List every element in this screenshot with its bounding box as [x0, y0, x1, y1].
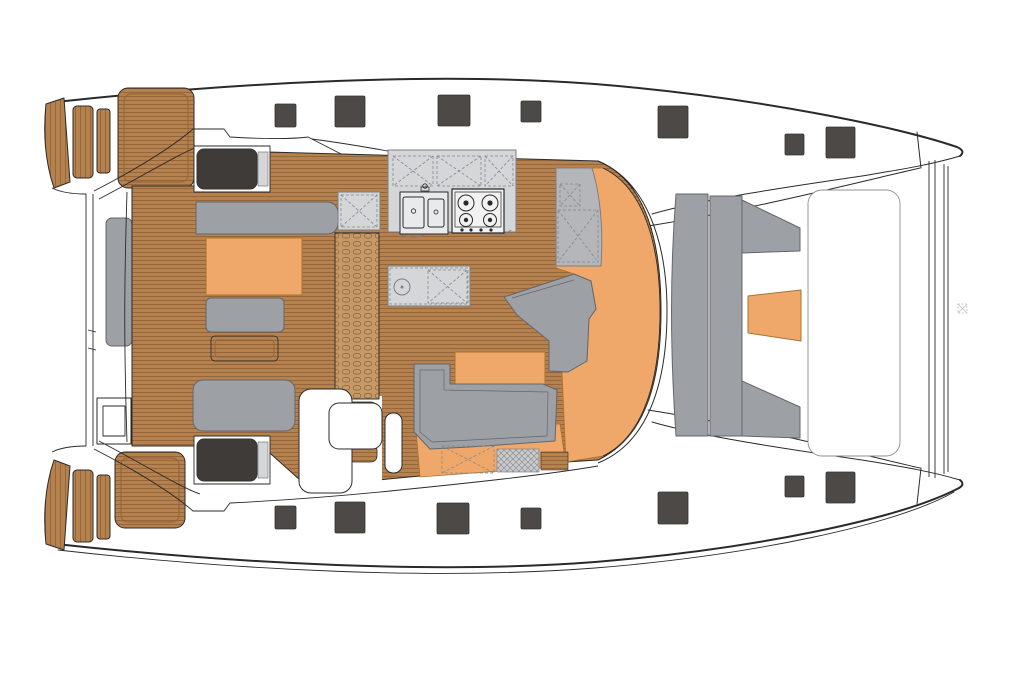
port-swim-step-wedge — [45, 98, 70, 188]
transom-lounge-panel — [106, 218, 132, 346]
deck-hatch — [521, 508, 541, 529]
deck-hatch — [658, 106, 688, 138]
deck-hatch — [275, 506, 296, 529]
deck-hatch — [826, 127, 855, 158]
saloon-floor-grate — [497, 449, 539, 472]
deck-hatch — [275, 104, 296, 127]
deck-hatch — [658, 492, 688, 524]
cockpit-bench-center — [206, 298, 284, 332]
stove-knob — [479, 228, 482, 231]
port-bow-step-line — [917, 132, 921, 168]
starboard-bow-step-line — [917, 468, 921, 504]
island-round-sink-drain — [401, 286, 404, 289]
deck-plan-canvas — [0, 0, 1024, 680]
deck-hatch — [521, 101, 541, 122]
stove-knob — [469, 228, 472, 231]
starboard-swim-step-wedge — [45, 460, 70, 550]
deck-hatch — [437, 503, 469, 534]
bow-crossbeam — [929, 160, 948, 478]
stove-knob — [460, 228, 463, 231]
cockpit-table — [206, 238, 302, 295]
transom-walkway — [52, 188, 96, 452]
port-swim-step — [97, 109, 110, 173]
fridge-module-bottom — [197, 439, 257, 481]
galley-counter-aft — [338, 192, 380, 230]
deck-hatch — [785, 134, 804, 155]
grill-module-top — [197, 149, 257, 189]
foredeck — [808, 160, 948, 478]
port-swim-step — [73, 106, 93, 178]
cockpit-bench-starboard — [193, 380, 295, 431]
galley-stove — [452, 189, 504, 233]
forward-cockpit-wing-starboard — [742, 381, 800, 438]
forward-cockpit-table — [748, 290, 801, 341]
sliding-door-threshold — [335, 233, 379, 399]
flybridge-step-small — [385, 413, 402, 473]
starboard-swim-step — [97, 475, 110, 539]
flybridge-step-mid — [329, 403, 382, 449]
saloon-floor-teak-insert — [541, 452, 568, 470]
starboard-hull-rubrail-line — [58, 492, 954, 573]
cockpit-bench-aft — [196, 202, 338, 234]
deck-hatch — [335, 502, 365, 533]
starboard-swim-step — [73, 470, 93, 542]
forward-cockpit-wing-port — [742, 200, 800, 253]
grill-module-top-shelf — [258, 152, 268, 186]
cleat-mark — [88, 348, 96, 350]
galley-island-counter — [388, 266, 470, 306]
watermark-mark — [958, 304, 967, 313]
cleat-mark — [88, 330, 96, 332]
fridge-module-bottom-shelf — [258, 442, 268, 478]
forward-cockpit-bench-inner — [672, 194, 709, 436]
foredeck-locker-outline — [808, 190, 900, 456]
deck-hatch — [785, 476, 804, 497]
galley-cabinet-forward — [556, 168, 602, 266]
deck-hatch — [335, 96, 365, 127]
deck-hatch — [826, 472, 855, 503]
starboard-stern-teak-pad — [115, 452, 185, 528]
catamaran-deck-plan — [0, 0, 1024, 680]
forward-cockpit — [672, 194, 802, 438]
faucet — [421, 187, 429, 191]
stove-knob — [489, 228, 492, 231]
deck-hatch — [438, 95, 470, 126]
forward-cockpit-bench-outer — [710, 196, 742, 436]
